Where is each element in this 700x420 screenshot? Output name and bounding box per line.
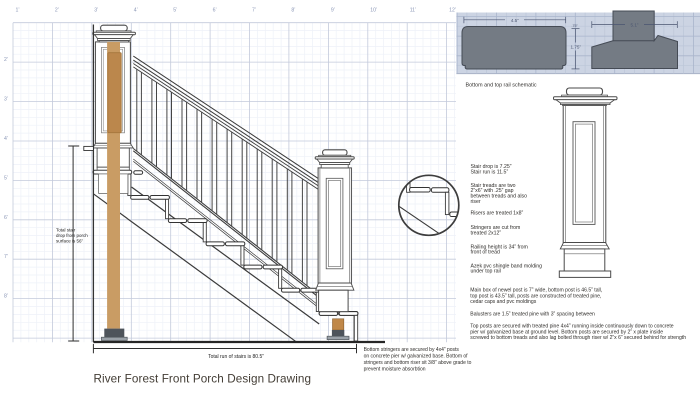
svg-text:stringers and bottom riser sit: stringers and bottom riser sit 3/8” abov… (364, 360, 472, 366)
svg-text:Total stair: Total stair (56, 227, 76, 232)
svg-text:under top rail: under top rail (471, 269, 501, 275)
svg-text:6’: 6’ (4, 215, 8, 221)
svg-text:5’: 5’ (4, 175, 8, 181)
svg-text:4.5”: 4.5” (511, 18, 519, 23)
svg-text:Total run of stairs is 80.5”: Total run of stairs is 80.5” (208, 354, 264, 360)
svg-text:1’: 1’ (16, 8, 20, 14)
svg-text:screwed to bottom treads and: screwed to bottom treads and also lag bo… (470, 335, 686, 341)
svg-text:2’: 2’ (55, 8, 59, 14)
svg-text:8’: 8’ (291, 8, 295, 14)
svg-text:6’: 6’ (213, 8, 217, 14)
svg-text:cedar caps and pvc moldings: cedar caps and pvc moldings (470, 299, 536, 305)
svg-text:Risers are treated 1x8”: Risers are treated 1x8” (471, 210, 524, 216)
svg-text:3’: 3’ (4, 97, 8, 103)
svg-text:9’: 9’ (331, 8, 335, 14)
svg-text:Stair run is 11.5”: Stair run is 11.5” (471, 169, 509, 175)
svg-text:surface is 56”: surface is 56” (56, 238, 84, 243)
svg-text:7’: 7’ (252, 8, 256, 14)
svg-text:7’: 7’ (4, 254, 8, 260)
svg-text:drop from porch: drop from porch (56, 233, 88, 238)
svg-text:5.1”: 5.1” (631, 23, 639, 28)
svg-text:3’: 3’ (94, 8, 98, 14)
svg-text:Bottom and top rail schematic: Bottom and top rail schematic (466, 83, 537, 89)
svg-text:prevent moisture absorbtion: prevent moisture absorbtion (364, 366, 426, 372)
svg-text:on concrete pier w/ galvanized: on concrete pier w/ galvanized base. Bot… (364, 354, 469, 360)
svg-text:1.75”: 1.75” (571, 45, 582, 50)
svg-text:front of tread: front of tread (471, 250, 501, 256)
svg-text:Balusters are 1.5” treated pin: Balusters are 1.5” treated pine with 3” … (470, 312, 595, 318)
svg-text:10’: 10’ (370, 8, 377, 14)
svg-text:11’: 11’ (410, 8, 417, 14)
svg-text:4’: 4’ (134, 8, 138, 14)
svg-text:treated 2x12”: treated 2x12” (471, 230, 502, 236)
svg-text:River Forest Front Porch Desig: River Forest Front Porch Design Drawing (94, 373, 312, 386)
svg-text:.75”: .75” (572, 24, 579, 28)
svg-text:riser: riser (471, 199, 481, 205)
svg-text:5’: 5’ (173, 8, 177, 14)
svg-text:4’: 4’ (4, 136, 8, 142)
svg-text:2’: 2’ (4, 57, 8, 63)
svg-text:Bottom stringers are secured b: Bottom stringers are secured by 4x4” pos… (364, 347, 460, 353)
svg-text:12’: 12’ (449, 8, 456, 14)
svg-text:8’: 8’ (4, 294, 8, 300)
